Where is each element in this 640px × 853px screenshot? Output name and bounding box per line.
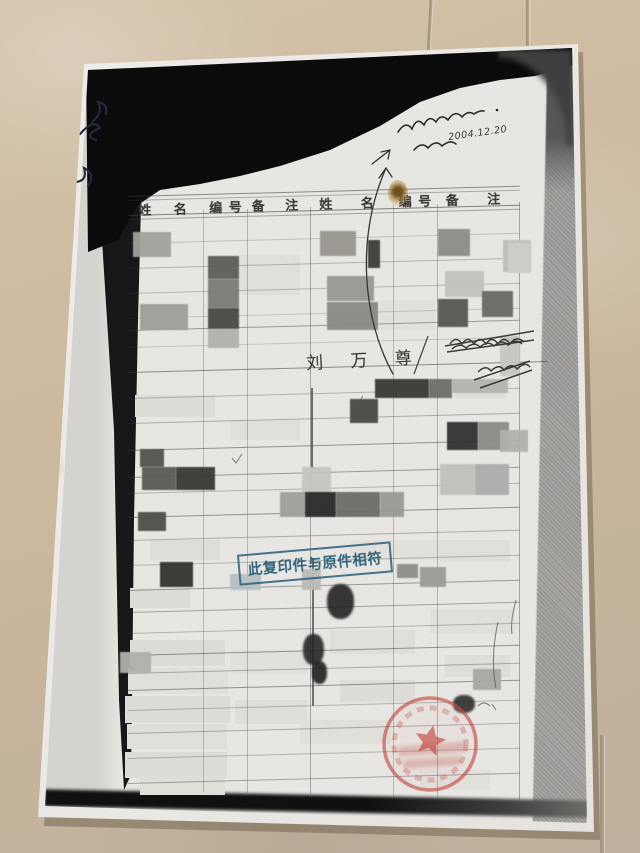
handwriting-marks — [0, 0, 640, 853]
crossed-out-scribble — [445, 331, 534, 388]
curved-arrow-annotation — [366, 150, 393, 374]
tile-groove — [600, 735, 604, 853]
tile-groove — [526, 0, 529, 48]
yellow-stain — [40, 448, 64, 488]
photocopy-paper: 姓 名 编 号 备 注 姓 名 编 号 备 注 — [0, 0, 640, 853]
corner-scribble — [52, 102, 106, 186]
floor-tile-background: 姓 名 编 号 备 注 姓 名 编 号 备 注 — [0, 0, 640, 853]
brown-stain — [388, 180, 408, 206]
